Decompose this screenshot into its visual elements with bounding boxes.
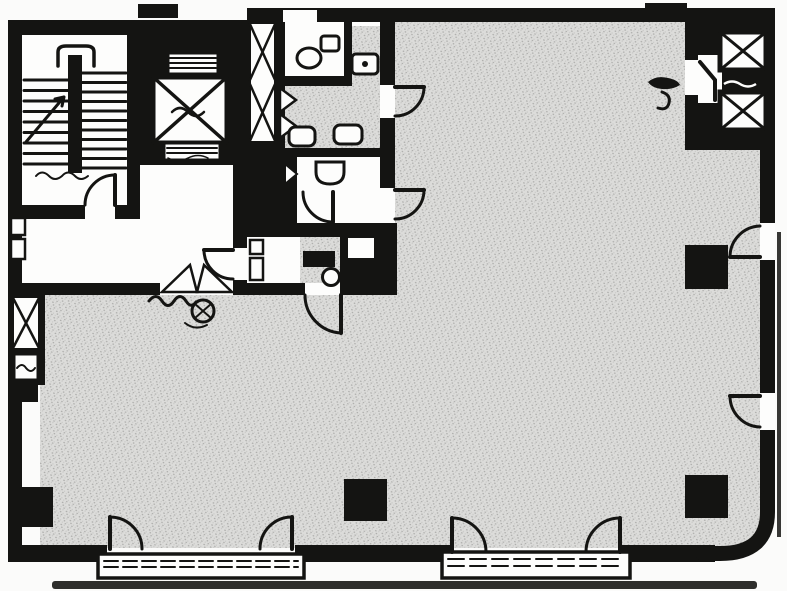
counter-icon [303, 251, 335, 267]
scan-edge-shadow [52, 581, 757, 589]
pipe-shaft-core [249, 22, 276, 143]
sink-icon [352, 54, 378, 74]
call-panel-bottom [164, 143, 220, 161]
shaft-notch [348, 238, 374, 258]
column [685, 475, 728, 518]
floor-plan-scan [0, 0, 787, 591]
urinal-icon [289, 127, 315, 146]
round-fixture-icon [323, 269, 340, 286]
elevator-car-icon [720, 32, 766, 70]
urinal-icon [334, 125, 362, 144]
wall-pier [8, 487, 53, 527]
vent-slot [283, 10, 317, 22]
floor-plan-drawing [0, 0, 787, 591]
column [344, 479, 387, 521]
elevator-car-icon [720, 92, 766, 130]
pipe-shaft-west [12, 296, 40, 380]
call-panel-top [168, 53, 218, 74]
stair-divider [68, 55, 82, 173]
column [685, 245, 728, 289]
storage-room [250, 240, 263, 280]
scan-edge-line [777, 232, 781, 537]
parapet-bump [138, 4, 178, 18]
lobby-wall-fixtures [11, 218, 25, 259]
parapet-bump [645, 3, 687, 14]
wash-basin-icon [316, 162, 344, 184]
